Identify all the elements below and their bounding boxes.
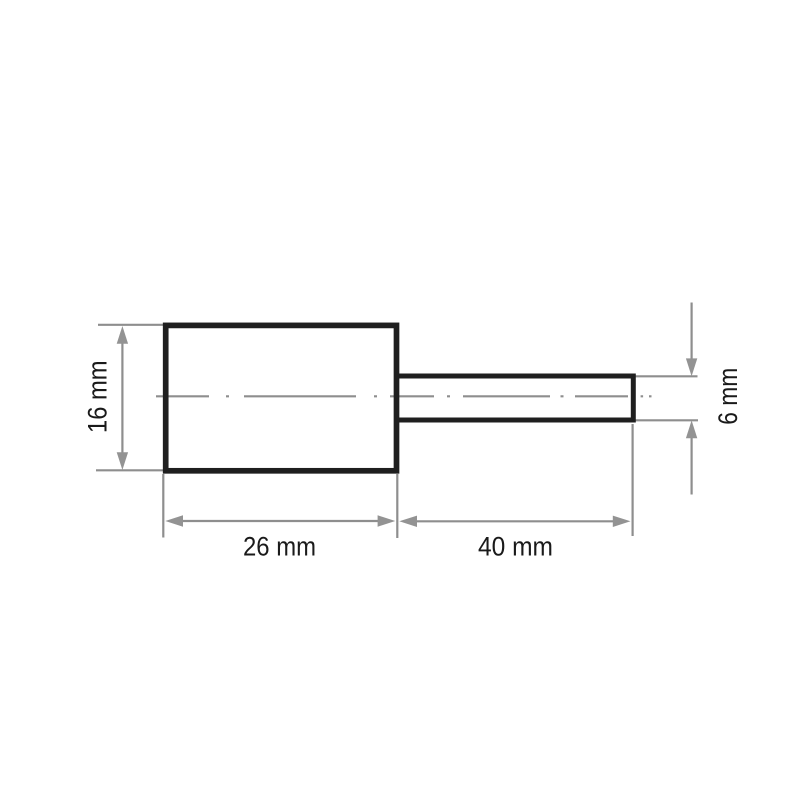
- svg-text:26 mm: 26 mm: [243, 531, 316, 561]
- svg-text:6 mm: 6 mm: [713, 368, 743, 425]
- svg-text:40 mm: 40 mm: [478, 531, 553, 561]
- svg-text:16 mm: 16 mm: [82, 361, 112, 434]
